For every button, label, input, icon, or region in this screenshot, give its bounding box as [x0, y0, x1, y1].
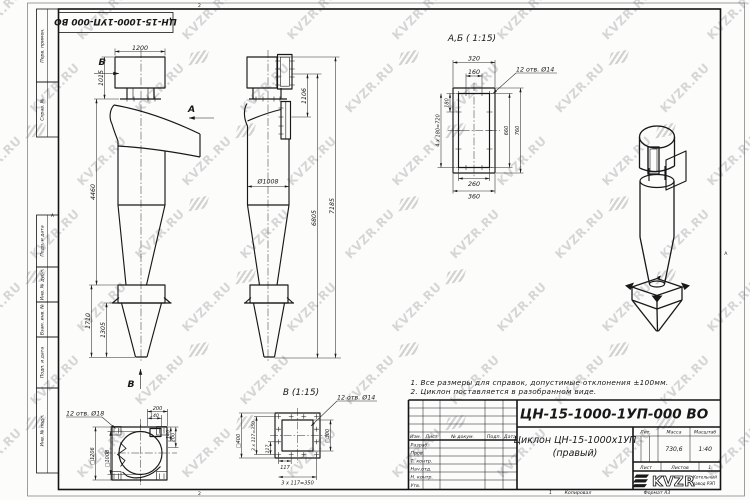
col-podp: Подп.	[487, 434, 501, 440]
dim-1200: 1200	[132, 45, 148, 52]
margin-sprav: Справ. №	[40, 98, 46, 121]
front-collector-box	[115, 57, 165, 88]
view-arrow-v-label: В	[127, 379, 134, 390]
row-tkontr: Т. контр.	[411, 459, 433, 465]
sheet-label: Лист	[639, 465, 652, 471]
row-prov: Пров.	[411, 451, 425, 457]
kvzr-logo-sub1: Котельный	[693, 475, 717, 480]
cyclone-drawing: 2 2 А А ЦН-15-1000-1УП-000 ВО Перв. прим…	[0, 0, 750, 500]
dim-1305: 1305	[100, 322, 107, 338]
kvzr-logo-text: KVZR	[652, 474, 695, 490]
left-margin-boxes: Перв. примен. Справ. № Подп. и дата Инв.…	[37, 9, 59, 473]
dim-117-bottom: 117	[280, 465, 290, 471]
top-stamp-text: ЦН-15-1000-1УП-000 ВО	[54, 16, 177, 26]
section-ab-view: А,Б ( 1:15) 320 160 12 отв. Ø14 180 4 x …	[436, 34, 557, 200]
dim-6805: 6805	[311, 210, 318, 226]
bottom-view: 12 отв. Ø18 □1206 □1008 200 140 140 200	[66, 406, 179, 487]
row-nachotd: Нач.отд.	[411, 467, 432, 473]
col-list: Лист	[425, 434, 438, 440]
bottom-holes-note: 12 отв. Ø18	[66, 410, 104, 418]
drawing-sheet: KVZR.RUKVZR.RUKVZR.RUKVZR.RUKVZR.RUKVZR.…	[0, 0, 750, 500]
dim-260: 260	[468, 181, 480, 188]
sheet-frame: 2 2 А А ЦН-15-1000-1УП-000 ВО Перв. прим…	[28, 3, 745, 497]
side-inlet-flange	[278, 55, 293, 90]
front-view: 1200 1015 4460 1710 1305 Б А В	[85, 45, 214, 390]
dim-sq300: □300	[325, 429, 331, 443]
view-v: В (1:15) 12 отв. Ø14 □400 3 x 117=350 11…	[236, 388, 377, 487]
side-scroll	[244, 104, 281, 127]
part-name-line1: Циклон ЦН-15-1000х1УП	[514, 435, 637, 446]
margin-podp1: Подп. и дата	[40, 225, 46, 256]
dim-117-left: 117	[265, 445, 271, 454]
footer-format: Формат А3	[644, 490, 671, 496]
col-izm: Изм.	[410, 434, 421, 440]
dim-200-top: 200	[153, 406, 163, 412]
footer-copied: Копировал	[565, 490, 592, 496]
mass-label: Масса	[667, 430, 682, 436]
dim-sq1008: □1008	[105, 450, 111, 467]
dim-1710: 1710	[85, 313, 92, 329]
iso-inlet-opening	[648, 147, 659, 174]
zone-mark-right: А	[724, 251, 728, 257]
dim-1106: 1106	[301, 88, 308, 104]
sheets-label: Листов	[670, 465, 689, 471]
part-name-line2: (правый)	[553, 448, 598, 459]
dim-7185: 7185	[329, 198, 336, 214]
note-2: 2. Циклон поставляется в разобранном вид…	[411, 387, 597, 396]
front-cone	[118, 205, 165, 285]
row-nkontr: Н. контр.	[411, 475, 433, 481]
lit-label: Лит.	[639, 430, 651, 436]
iso-hopper-box	[632, 279, 682, 310]
scale-label: Масштаб	[694, 430, 716, 436]
front-hopper-box	[118, 285, 165, 303]
iso-cone	[640, 237, 674, 284]
col-data: Дата	[503, 434, 516, 440]
footer: 1 Копировал Формат А3	[549, 490, 670, 496]
view-arrow-a-label: А	[187, 104, 195, 115]
dim-760: 760	[515, 126, 521, 136]
kvzr-logo: KVZR Котельный завод РЭП	[632, 474, 717, 490]
margin-inv-dubl: Инв. № дубл.	[40, 269, 46, 300]
section-ab-title: А,Б ( 1:15)	[447, 34, 496, 44]
dim-sq400: □400	[236, 434, 242, 448]
iso-outlet-bracket	[666, 151, 686, 190]
bottom-scroll-curve	[123, 467, 161, 478]
side-hopper-box	[250, 285, 288, 303]
doc-number: ЦН-15-1000-1УП-000 ВО	[520, 407, 708, 423]
title-block: ЦН-15-1000-1УП-000 ВО Циклон ЦН-15-1000х…	[409, 400, 721, 490]
dim-320: 320	[468, 56, 480, 63]
front-scroll-inlet	[110, 105, 200, 157]
side-lower-cone	[254, 303, 285, 357]
margin-perv-primen: Перв. примен.	[40, 28, 46, 63]
iso-corner-gussets	[625, 276, 690, 303]
kvzr-logo-icon	[632, 475, 649, 488]
front-cylinder	[118, 141, 165, 205]
note-1: 1. Все размеры для справок, допустимые о…	[411, 378, 669, 387]
dim-4x180: 4 x 180=720	[436, 114, 442, 147]
view-v-holes-note: 12 отв. Ø14	[337, 394, 375, 402]
dim-180: 180	[445, 98, 451, 108]
iso-cylinder	[640, 181, 674, 237]
isometric-view	[625, 126, 690, 331]
view-v-title: В (1:15)	[283, 388, 319, 398]
margin-vzam: Взам. инв. №	[40, 304, 46, 335]
side-collector-box	[247, 57, 277, 88]
view-arrow-b-label: Б	[98, 57, 105, 68]
dim-140-top: 140	[150, 413, 159, 419]
section-ab-holes-note: 12 отв. Ø14	[516, 66, 554, 74]
dim-660: 660	[504, 126, 510, 136]
notes: 1. Все размеры для справок, допустимые о…	[411, 378, 669, 396]
zone-mark-bottom: 2	[198, 491, 201, 497]
col-docnum: № докум.	[450, 434, 474, 440]
margin-inv-podl: Инв. № подл.	[40, 415, 46, 447]
section-ab-leader	[493, 73, 516, 94]
dim-sq1206: □1206	[90, 447, 96, 464]
dim-3x117-bottom: 3 x 117=350	[281, 481, 314, 487]
iso-collector-top	[640, 126, 675, 148]
kvzr-logo-sub2: завод РЭП	[693, 481, 715, 486]
dim-4460: 4460	[90, 184, 97, 200]
mass-value: 730,6	[665, 446, 682, 453]
sheets-value: 1	[708, 465, 711, 471]
margin-podp2: Подп. и дата	[40, 347, 46, 378]
row-utv: Утв.	[411, 483, 421, 489]
side-view: Ø1008 1106 6805 7185	[244, 50, 341, 362]
dim-dia-1008: Ø1008	[257, 178, 279, 186]
row-razrab: Разраб.	[411, 443, 429, 449]
scale-value: 1:40	[698, 446, 712, 453]
zone-mark-top: 2	[198, 3, 201, 9]
dim-200-right: 200	[171, 433, 177, 443]
dim-360: 360	[468, 193, 480, 200]
zone-mark-left: А	[51, 213, 55, 219]
dim-3x117-left: 3 x 117=350	[251, 421, 257, 451]
dim-1015: 1015	[98, 70, 105, 86]
dim-160: 160	[468, 69, 480, 76]
front-lower-cone	[122, 303, 162, 357]
footer-num: 1	[549, 490, 552, 496]
